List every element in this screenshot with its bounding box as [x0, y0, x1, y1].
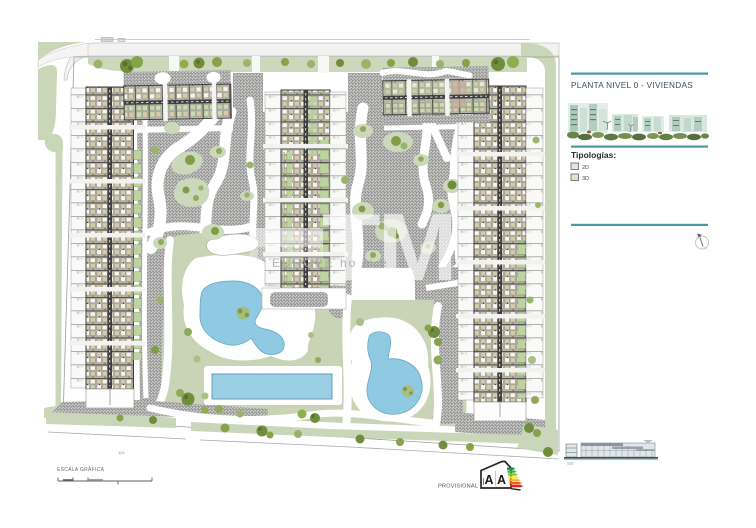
svg-text:PLANTA NIVEL 0 - VIVIENDAS: PLANTA NIVEL 0 - VIVIENDAS — [571, 81, 693, 90]
svg-text:123: 123 — [567, 462, 573, 466]
svg-text:TM: TM — [322, 194, 455, 301]
svg-text:3D: 3D — [582, 176, 589, 182]
svg-text:2D: 2D — [582, 165, 589, 171]
svg-text:ESCALA GRÁFICA: ESCALA GRÁFICA — [57, 466, 105, 473]
svg-text:101: 101 — [118, 450, 125, 455]
svg-text:EUROPE ho m e: EUROPE ho m e — [272, 256, 389, 270]
svg-text:PROVISIONAL: PROVISIONAL — [438, 484, 478, 490]
svg-text:Tipologías:: Tipologías: — [571, 150, 616, 160]
svg-text:A: A — [485, 473, 494, 487]
svg-text:A: A — [497, 473, 506, 487]
